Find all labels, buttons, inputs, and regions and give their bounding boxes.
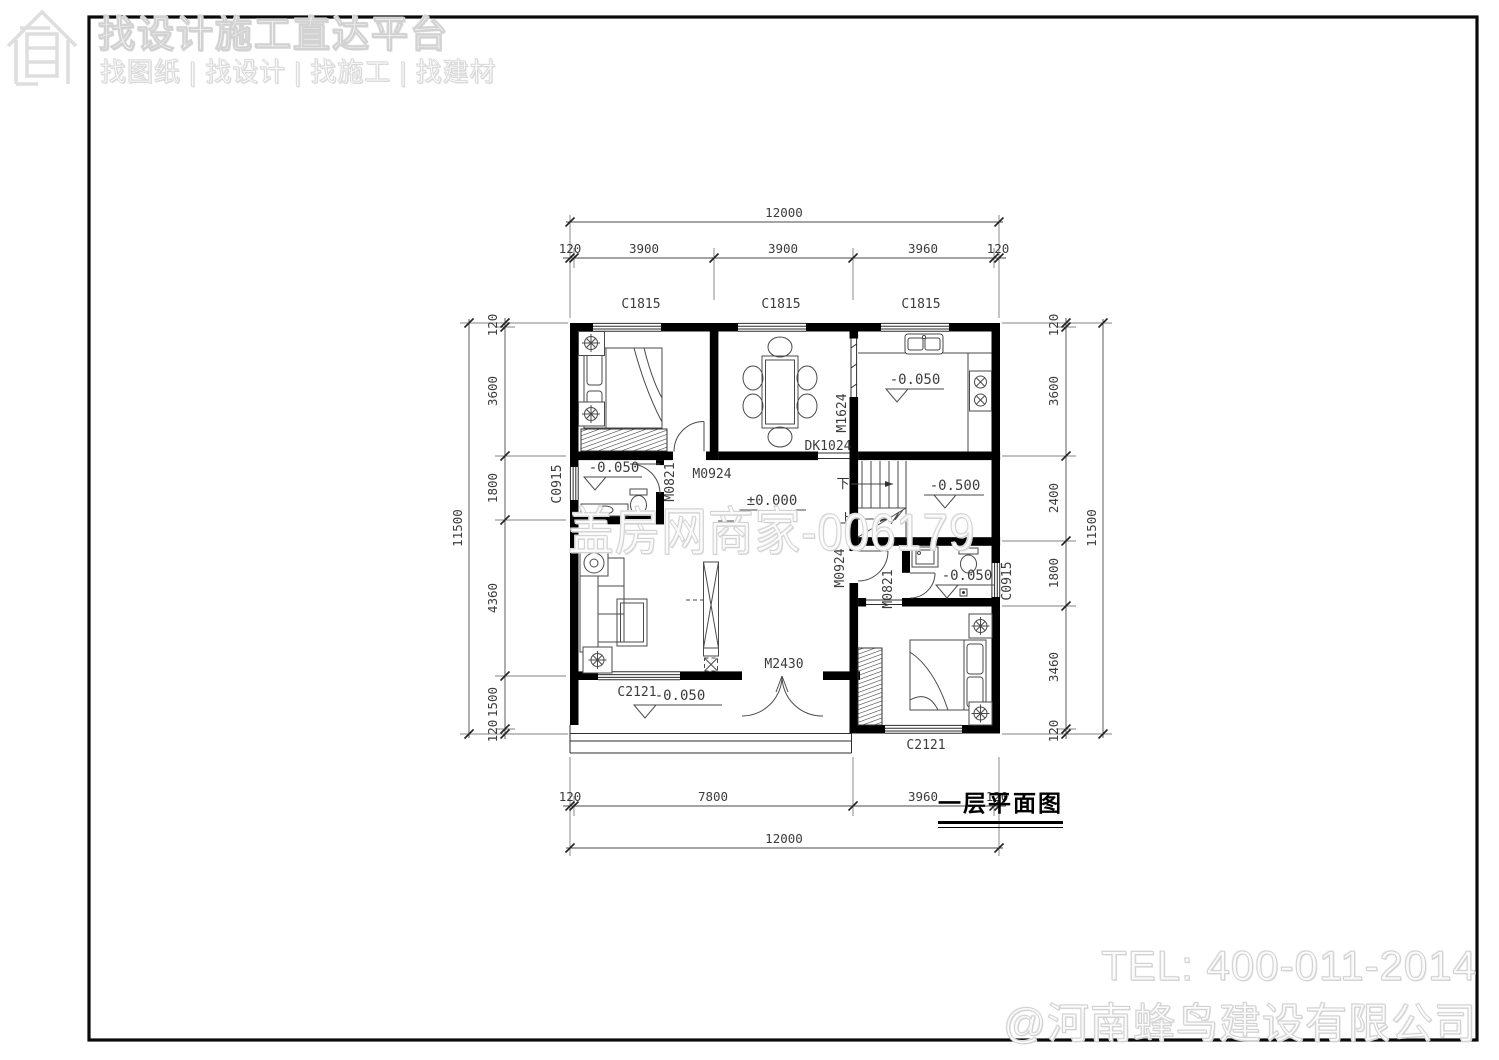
- svg-text:4360: 4360: [485, 583, 500, 613]
- level-bath-right: -0.050: [936, 568, 994, 598]
- svg-text:120: 120: [485, 314, 500, 337]
- title-underline: [938, 821, 1063, 824]
- dim-right-overall: 11500: [1084, 509, 1099, 547]
- svg-text:3960: 3960: [908, 241, 938, 256]
- bedroom-se: [858, 614, 992, 725]
- wardrobe-se: [858, 648, 882, 725]
- label-c1815-3: C1815: [901, 297, 940, 312]
- wardrobe-nw: [581, 429, 667, 451]
- porch: [570, 725, 852, 753]
- label-c1815-2: C1815: [761, 297, 800, 312]
- title-underline-2: [938, 827, 1063, 829]
- svg-text:120: 120: [1046, 720, 1061, 743]
- svg-text:3460: 3460: [1046, 652, 1061, 682]
- svg-text:120: 120: [1046, 314, 1061, 337]
- svg-text:120: 120: [987, 241, 1010, 256]
- svg-text:3900: 3900: [629, 241, 659, 256]
- svg-text:3960: 3960: [908, 789, 938, 804]
- svg-text:-0.050: -0.050: [589, 460, 640, 476]
- dim-bottom-overall: 12000: [765, 831, 803, 846]
- label-m0924-left: M0924: [692, 467, 731, 482]
- window-c2121-right: [885, 725, 962, 733]
- toilet: [631, 496, 647, 515]
- svg-text:-0.500: -0.500: [930, 478, 981, 494]
- label-dk1024: DK1024: [805, 439, 852, 454]
- floor-plan-canvas: -0.050 -0.050 ±0.000 -0.500 -0.050 -0.05…: [0, 0, 1499, 1060]
- label-m2430: M2430: [764, 657, 803, 672]
- label-c0915-right: C0915: [1000, 561, 1015, 600]
- dim-left-overall: 11500: [450, 509, 465, 547]
- label-m0821-right: M0821: [881, 569, 896, 608]
- living-furniture: [580, 550, 719, 673]
- svg-text:±0.000: ±0.000: [747, 493, 798, 509]
- stair-up-label: 上: [839, 511, 852, 526]
- dim-top-overall: 12000: [765, 205, 803, 220]
- level-kitchen: -0.050: [886, 372, 944, 402]
- label-m0821-left: M0821: [663, 462, 678, 501]
- label-m1624: M1624: [835, 393, 850, 432]
- drawing-page: -0.050 -0.050 ±0.000 -0.500 -0.050 -0.05…: [0, 0, 1499, 1060]
- svg-text:120: 120: [559, 241, 582, 256]
- svg-text:3600: 3600: [485, 376, 500, 406]
- svg-text:1800: 1800: [1046, 558, 1061, 588]
- stair-down-label: 下: [836, 476, 849, 491]
- label-c2121-left: C2121: [617, 685, 656, 700]
- label-c1815-1: C1815: [621, 297, 660, 312]
- svg-text:2400: 2400: [1046, 483, 1061, 513]
- label-m0924-right: M0924: [833, 548, 848, 587]
- label-c2121-right: C2121: [906, 738, 945, 753]
- svg-text:3900: 3900: [768, 241, 798, 256]
- window-c1815-2: [738, 323, 806, 331]
- level-living: ±0.000: [718, 493, 806, 521]
- window-c0915-left: [570, 467, 578, 500]
- dining-set: [743, 337, 817, 447]
- svg-text:3600: 3600: [1046, 376, 1061, 406]
- plan-title-text: 一层平面图: [938, 784, 1063, 818]
- svg-text:1800: 1800: [485, 473, 500, 503]
- window-c1815-1: [593, 323, 661, 331]
- svg-text:120: 120: [559, 789, 582, 804]
- level-bath-left: -0.050: [584, 460, 642, 490]
- sheet-border: [89, 17, 1477, 1040]
- stove: [970, 371, 992, 411]
- level-stair: -0.500: [924, 478, 984, 508]
- kitchen-fixtures: [858, 334, 991, 452]
- coffee-table: [617, 599, 647, 646]
- label-c0915-left: C0915: [550, 464, 565, 503]
- logo-icon: [8, 12, 76, 84]
- toilet-tank: [959, 548, 978, 554]
- svg-text:120: 120: [485, 720, 500, 743]
- bath-left-fixtures: [581, 489, 647, 516]
- kitchen-sink: [905, 334, 943, 354]
- plan-title: 一层平面图: [938, 784, 1063, 828]
- svg-text:-0.050: -0.050: [655, 688, 706, 704]
- svg-text:-0.050: -0.050: [942, 568, 993, 584]
- window-c0915-right: [992, 563, 1000, 597]
- toilet-tank: [630, 489, 647, 495]
- staircase: [851, 461, 906, 537]
- window-c1815-3: [881, 323, 949, 331]
- svg-text:1500: 1500: [485, 687, 500, 717]
- svg-text:7800: 7800: [698, 789, 728, 804]
- svg-text:-0.050: -0.050: [890, 372, 941, 388]
